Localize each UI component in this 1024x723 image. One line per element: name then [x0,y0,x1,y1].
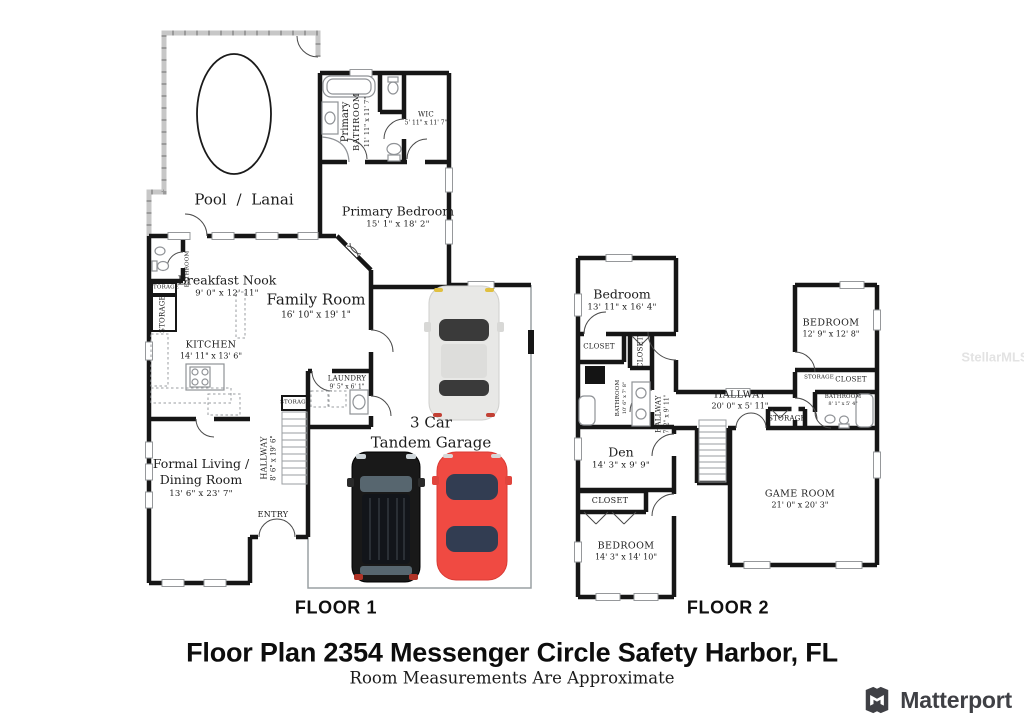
room-dims: 14' 3" x 9' 9" [592,461,650,472]
room-label-pool-lanai: Pool / Lanai [194,190,293,210]
room-label-game-room: GAME ROOM 21' 0" x 20' 3" [765,489,835,512]
room-name: Primary [339,93,352,151]
room-dims: 9' 5" x 6' 1" [328,384,366,392]
room-dims: 16' 10" x 19' 1" [267,310,366,322]
room-label-storage-stairs: STORAGE [280,399,310,406]
room-name: LAUNDRY [328,375,366,384]
room-name: BEDROOM [595,541,657,553]
room-name: CLOSET [592,496,628,506]
matterport-logo: Matterport [862,685,1012,715]
room-name: Den [592,444,650,460]
room-label-breakfast-nook: Breakfast Nook 9' 0" x 12' 11" [178,272,277,299]
room-name: KITCHEN [180,340,242,352]
room-label-bedroom2: BEDROOM 12' 9" x 12' 8" [803,318,860,341]
room-name-2: BATHROOM [352,93,363,151]
room-label-hallway: HALLWAY 8' 6" x 19' 6" [259,435,278,480]
red-car [432,452,512,580]
room-dims: 13' 6" x 23' 7" [149,489,253,500]
room-label-entry: ENTRY [258,510,289,520]
room-label-family-room: Family Room 16' 10" x 19' 1" [267,290,366,321]
room-name: STORAGE [804,374,834,381]
room-name: Family Room [267,290,366,310]
floor2-caption: FLOOR 2 [687,598,769,619]
room-label-closet4: CLOSET [592,496,628,506]
room-label-storage-tall: STORAGE [158,295,167,333]
room-label-closet1: CLOSET [583,342,615,351]
room-label-hallway-small: HALLWAY 7' 2" x 9' 11" [655,395,672,434]
room-name: GAME ROOM [765,489,835,501]
room-label-bathroom-left: BATHROOM 10' 6" x 7' 8" [615,380,629,417]
room-dims: 14' 3" x 14' 10" [595,553,657,563]
room-name: BATHROOM [825,394,862,401]
room-name: HALLWAY [712,390,769,402]
white-car [424,286,504,420]
room-name: BATHROOM [615,380,622,417]
room-dims: 8' 1" x 5' 4" [825,401,862,408]
room-label-closet3: CLOSET [835,375,867,384]
room-label-garage: 3 Car Tandem Garage [371,414,491,453]
room-name: STORAGE [280,399,310,406]
room-name: STORAGE [768,414,806,423]
room-dims: 11' 11" x 11' 7" [363,93,371,151]
room-label-bathroom-right: BATHROOM 8' 1" x 5' 4" [825,394,862,408]
matterport-icon [862,685,892,715]
room-label-formal-living: Formal Living / Dining Room 13' 6" x 23'… [149,456,253,500]
room-dims: 12' 9" x 12' 8" [803,330,860,340]
room-label-primary-bathroom: Primary BATHROOM 11' 11" x 11' 7" [339,93,371,151]
room-label-bedroom1: Bedroom 13' 11" x 16' 4" [587,286,656,313]
page-subtitle: Room Measurements Are Approximate [350,669,675,688]
room-name: CLOSET [835,375,867,384]
room-label-bedroom3: BEDROOM 14' 3" x 14' 10" [595,541,657,564]
room-dims: 8' 6" x 19' 6" [270,435,279,480]
room-name: WIC [405,111,448,120]
room-name: Primary Bedroom [342,203,454,219]
room-label-bathroom-small: BATHROOM [184,251,191,288]
room-dims: 20' 0" x 5' 11" [712,402,769,412]
room-dims: 13' 11" x 16' 4" [587,303,656,314]
room-name-2: Tandem Garage [371,433,491,453]
room-label-wic: WIC 5' 11" x 11' 7" [405,111,448,128]
laundry-appliances [311,390,368,414]
room-name: Bedroom [587,286,656,302]
pool [197,54,271,174]
room-label-closet2: CLOSET [636,336,645,368]
room-dims: 9' 0" x 12' 11" [178,289,277,300]
room-dims: 15' 1" x 18' 2" [342,220,454,231]
room-dims: 21' 0" x 20' 3" [765,501,835,511]
room-name: STORAGE [158,295,167,333]
black-suv [347,452,425,582]
room-label-storage-small2: STORAGE [804,374,834,381]
room-name: BEDROOM [803,318,860,330]
room-name: Formal Living / Dining Room [149,456,253,489]
room-name: 3 Car [371,414,491,434]
matterport-wordmark: Matterport [900,687,1012,714]
room-label-kitchen: KITCHEN 14' 11" x 13' 6" [180,340,242,363]
room-name: BATHROOM [184,251,191,288]
room-label-laundry: LAUNDRY 9' 5" x 6' 1" [328,375,366,392]
floor1-caption: FLOOR 1 [295,598,377,619]
stellar-mls-watermark: StellarMLS [961,350,1024,365]
room-name: ENTRY [258,510,289,520]
stairs-floor1 [282,412,307,484]
room-name: Breakfast Nook [178,272,277,288]
room-label-storage-hall: STORAGE [768,414,806,423]
page-title: Floor Plan 2354 Messenger Circle Safety … [186,638,838,669]
room-name: Pool / Lanai [194,190,293,210]
room-name: CLOSET [583,342,615,351]
room-dims: 10' 6" x 7' 8" [622,380,629,417]
room-label-den: Den 14' 3" x 9' 9" [592,444,650,471]
room-label-hallway-main: HALLWAY 20' 0" x 5' 11" [712,390,769,413]
room-label-storage-small: STORAGE [149,284,179,291]
room-dims: 14' 11" x 13' 6" [180,352,242,362]
room-name: CLOSET [636,336,645,368]
room-dims: 5' 11" x 11' 7" [405,120,448,128]
stairs-floor2 [699,420,726,482]
room-name: HALLWAY [655,395,664,434]
room-name: STORAGE [149,284,179,291]
room-label-primary-bedroom: Primary Bedroom 15' 1" x 18' 2" [342,203,454,230]
room-dims: 7' 2" x 9' 11" [664,395,672,434]
room-name: HALLWAY [259,435,269,480]
floorplan-page: Pool / Lanai Primary BATHROOM 11' 11" x … [0,0,1024,723]
